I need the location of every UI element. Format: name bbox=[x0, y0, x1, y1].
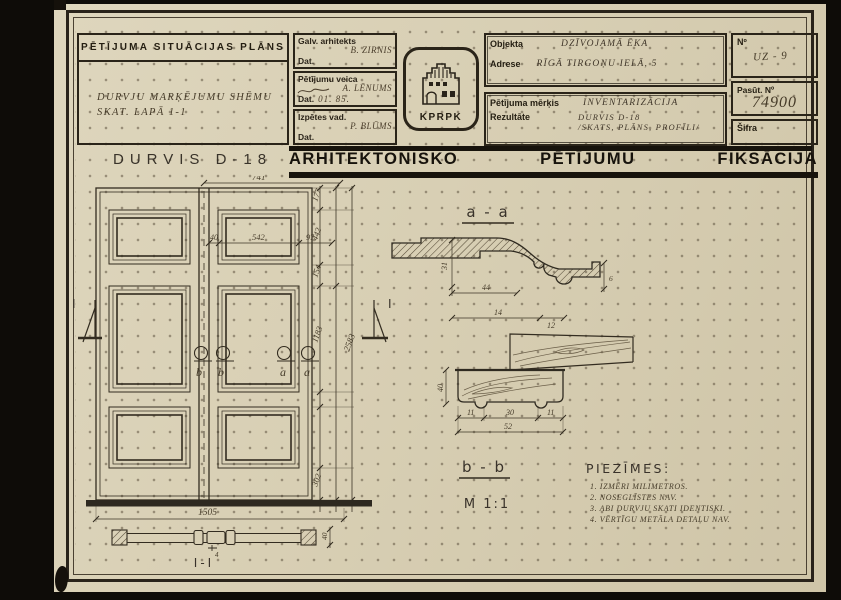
plan-label: I-I bbox=[194, 556, 214, 570]
title-band: ARHITEKTONISKO PĒTĪJUMU FIKSĀCIJA bbox=[289, 150, 818, 169]
date-value: 01. 85. bbox=[318, 94, 350, 104]
drawing-field: 741 40 542 97 177 442 154 1183 302 2583 … bbox=[65, 176, 820, 588]
dim-aa-small: 12 bbox=[547, 321, 555, 330]
mark-b-label-1: b bbox=[196, 365, 202, 379]
result-line-1: DURVIS D-18 bbox=[578, 112, 700, 122]
section-aa-label: a - a bbox=[466, 203, 509, 221]
number-value: UZ - 9 bbox=[753, 48, 813, 63]
object-box: Objekta DZĪVOJAMĀ ĒKA Adrese RĪGĀ TIRGOŅ… bbox=[484, 33, 727, 87]
note-item-4: 4. VĒRTĪGU METĀLA DETAĻU NAV. bbox=[590, 515, 730, 525]
situation-plan-note: DURVJU MARĶĒJUMU SHĒMU SKAT. LAPĀ 1-1 bbox=[97, 90, 287, 120]
note-item-3: 3. ABI DURVJU SKATI IDENTISKI. bbox=[589, 504, 726, 513]
plan-dim-small: 4 bbox=[215, 551, 219, 559]
logo-label: KPRPK bbox=[406, 112, 476, 123]
dim-bb-2: 30 bbox=[505, 408, 514, 417]
dim-height-5: 302 bbox=[309, 472, 323, 489]
dim-bottom-width: 1505 bbox=[198, 508, 217, 518]
dim-aa-vertical: 31 bbox=[440, 262, 449, 271]
object-label: Objekta bbox=[490, 39, 523, 49]
drawing-title: DURVIS D-18 bbox=[113, 151, 272, 168]
address-row: Adrese RĪGĀ TIRGOŅU IELĀ, 5 bbox=[486, 55, 725, 69]
number-label: Nº bbox=[737, 37, 812, 47]
kprpk-logo: KPRPK bbox=[403, 47, 479, 131]
note-line-1: DURVJU MARĶĒJUMU SHĒMU bbox=[97, 90, 287, 105]
section-mark-left-label: I bbox=[72, 297, 76, 311]
situation-plan-box: PĒTĪJUMA SITUĀCIJAS PLĀNS DURVJU MARĶĒJU… bbox=[77, 33, 289, 145]
signature-block: Galv. arhitekts B. ZIRNIS Dat. Pētījumu … bbox=[293, 33, 397, 147]
mark-b-label-2: b bbox=[218, 365, 224, 379]
section-mark-left bbox=[78, 300, 102, 342]
section-mark-right-label: I bbox=[388, 297, 392, 311]
cipher-cell: Šifra bbox=[731, 119, 818, 145]
purpose-box: Pētījuma mērķis INVENTARIZĀCIJA Rezultāt… bbox=[484, 92, 727, 146]
dim-bb-total: 52 bbox=[504, 422, 512, 431]
cipher-label: Šifra bbox=[737, 123, 812, 133]
signature-row-researcher: Pētījumu veica A. LĒNUMS Dat.01. 85. bbox=[293, 71, 397, 107]
dim-panel-width: 542 bbox=[252, 232, 266, 242]
dim-panel-left: 40 bbox=[210, 233, 218, 242]
plan-dim-side: 40 bbox=[320, 532, 329, 540]
signature-row-supervisor: Izpētes vad. P. BLŪMS Dat. bbox=[293, 109, 397, 145]
threshold-bar bbox=[86, 500, 372, 507]
dim-bb-1: 11 bbox=[467, 408, 474, 417]
dim-aa-bottom: 14 bbox=[494, 308, 502, 317]
section-aa-profile bbox=[392, 238, 600, 284]
mark-a-label-2: a bbox=[304, 365, 310, 379]
note-line-2: SKAT. LAPĀ 1-1 bbox=[97, 105, 287, 120]
date-label: Dat. bbox=[298, 132, 318, 142]
band-word-2: PĒTĪJUMU bbox=[540, 150, 635, 169]
door-elevation bbox=[96, 188, 312, 500]
dim-total-height: 2583 bbox=[341, 332, 357, 353]
section-bb-lower-board bbox=[458, 370, 563, 408]
result-line-2: /SKATS, PLĀNS, PROFĪLI/ bbox=[578, 122, 700, 132]
signature-name: B. ZIRNIS bbox=[298, 45, 392, 55]
address-value: RĪGĀ TIRGOŅU IELĀ, 5 bbox=[537, 59, 658, 69]
section-bb-grain bbox=[462, 375, 556, 399]
signature-name: P. BLŪMS bbox=[298, 121, 392, 131]
building-icon bbox=[415, 56, 467, 108]
situation-plan-title: PĒTĪJUMA SITUĀCIJAS PLĀNS bbox=[79, 35, 287, 62]
band-word-3: FIKSĀCIJA bbox=[717, 150, 818, 169]
section-bb-label: b - b bbox=[462, 458, 506, 476]
purpose-label: Pētījuma mērķis bbox=[490, 98, 559, 108]
object-row: Objekta DZĪVOJAMĀ ĒKA bbox=[486, 35, 725, 49]
band-word-1: ARHITEKTONISKO bbox=[289, 150, 458, 169]
number-column: Nº UZ - 9 Pasūt. Nº 74900 Šifra bbox=[731, 33, 818, 148]
notes-title: PIEZĪMES: bbox=[586, 461, 671, 476]
plan-section bbox=[112, 526, 333, 551]
purpose-row: Pētījuma mērķis INVENTARIZĀCIJA bbox=[486, 94, 725, 108]
note-item-2: 2. NOSEGLĪSTES NAV. bbox=[590, 493, 677, 502]
purpose-value: INVENTARIZĀCIJA bbox=[583, 98, 678, 108]
object-value: DZĪVOJAMĀ ĒKA bbox=[561, 39, 648, 49]
address-label: Adrese bbox=[490, 59, 521, 69]
dim-top-width: 741 bbox=[252, 176, 266, 182]
dim-bb-3: 11 bbox=[547, 408, 554, 417]
date-label: Dat. bbox=[298, 56, 318, 66]
result-label: Rezultāte bbox=[490, 112, 530, 132]
mark-a-label-1: a bbox=[280, 365, 286, 379]
signature-row-architect: Galv. arhitekts B. ZIRNIS Dat. bbox=[293, 33, 397, 69]
dim-bb-left: 40 bbox=[436, 384, 445, 392]
number-cell: Nº UZ - 9 bbox=[731, 33, 818, 78]
result-row: Rezultāte DURVIS D-18 /SKATS, PLĀNS, PRO… bbox=[486, 108, 725, 132]
scale-label: M 1:1 bbox=[464, 497, 510, 512]
scan-artifact bbox=[54, 0, 66, 10]
section-bb-upper-board bbox=[510, 334, 633, 370]
dim-aa-mid: 44 bbox=[482, 283, 490, 292]
order-number-cell: Pasūt. Nº 74900 bbox=[731, 81, 818, 116]
scanned-drawing-sheet: PĒTĪJUMA SITUĀCIJAS PLĀNS DURVJU MARĶĒJU… bbox=[0, 0, 841, 600]
date-label: Dat.01. 85. bbox=[298, 94, 350, 104]
dim-aa-right: 6 bbox=[609, 274, 613, 283]
section-mark-right bbox=[362, 300, 388, 342]
cut-markers bbox=[194, 347, 319, 362]
order-number-value: 74900 bbox=[737, 94, 812, 112]
result-value: DURVIS D-18 /SKATS, PLĀNS, PROFĪLI/ bbox=[578, 112, 700, 132]
note-item-1: 1. IZMĒRI MILIMETROS. bbox=[590, 482, 688, 491]
